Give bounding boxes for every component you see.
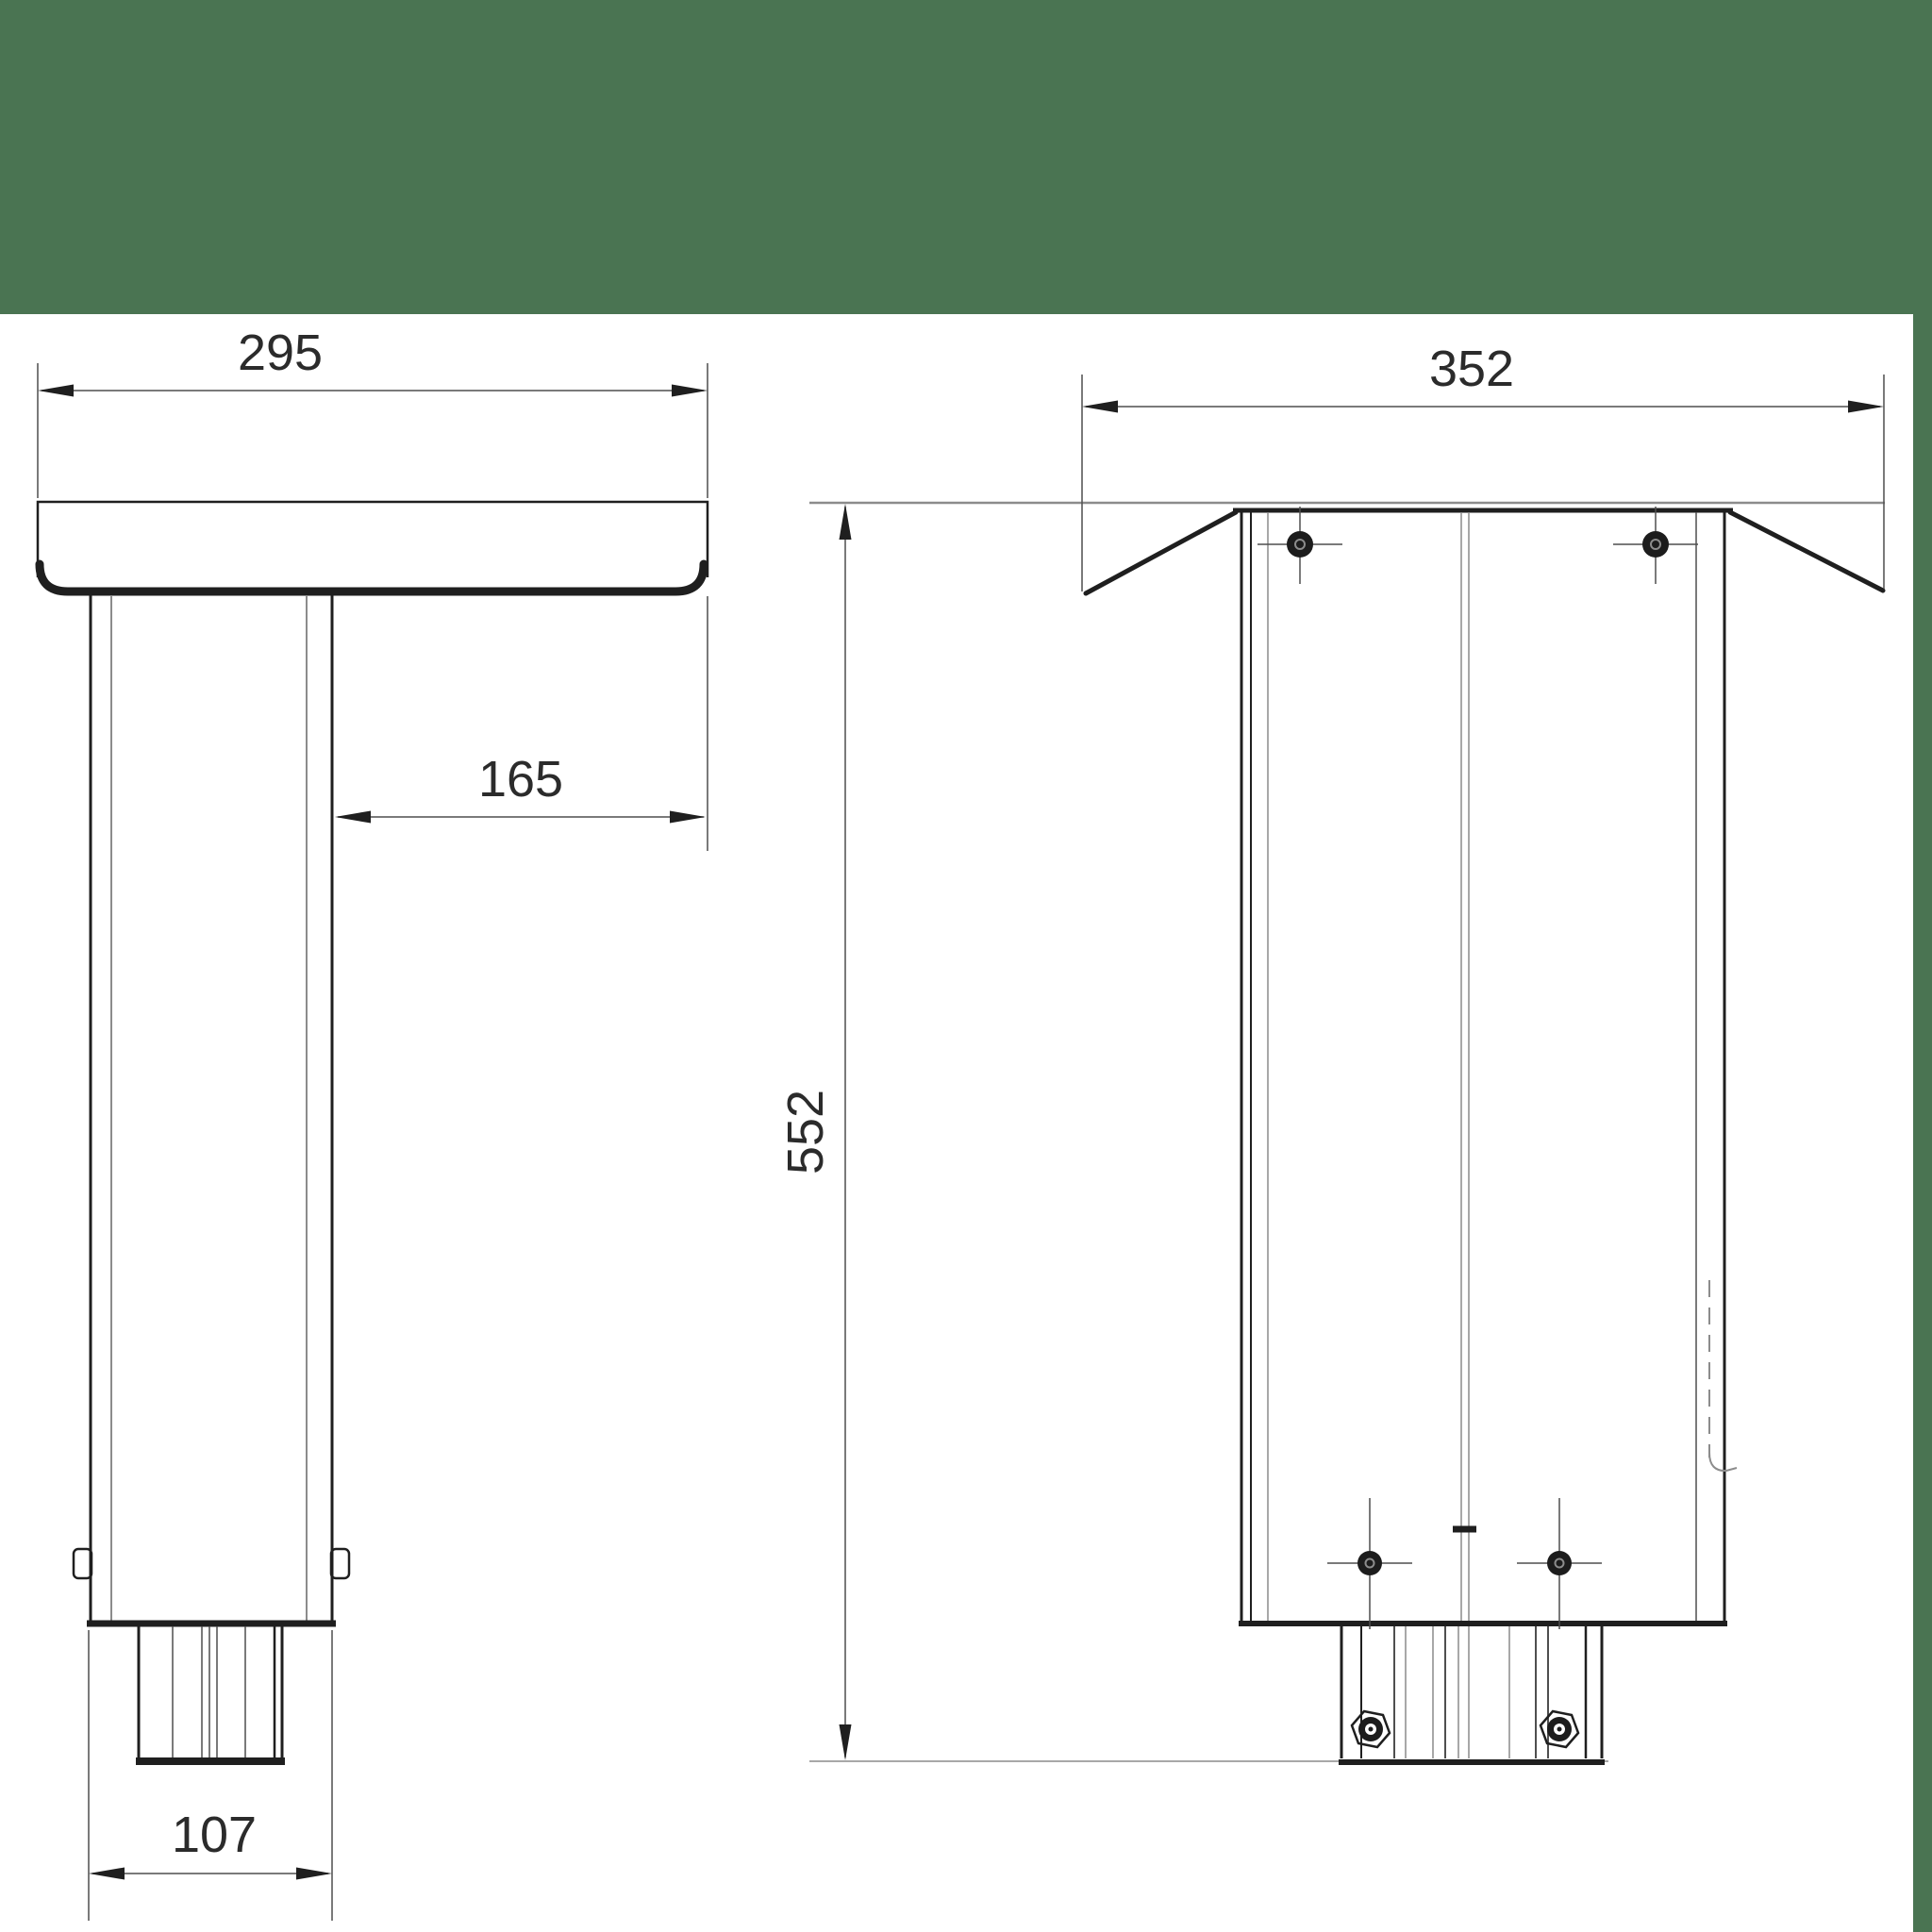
lower-mounting-screws xyxy=(1327,1498,1602,1629)
arrowhead-left-icon xyxy=(335,811,371,824)
left-side-tab xyxy=(74,1549,92,1578)
dimension-total-height-552: 552 xyxy=(777,504,852,1760)
side-view-column xyxy=(74,595,349,1624)
plate-outline xyxy=(38,502,708,577)
screw-icon xyxy=(1357,1551,1382,1575)
foot-screw-icon xyxy=(1352,1711,1390,1747)
top-mounting-screws xyxy=(1257,507,1698,584)
screw-icon xyxy=(1547,1551,1572,1575)
foot-screw-icon xyxy=(1541,1711,1578,1747)
right-wing xyxy=(1730,512,1883,591)
dimension-label-107: 107 xyxy=(172,1807,257,1863)
technical-drawing-canvas: 295 165 107 xyxy=(0,0,1932,1932)
arrowhead-up-icon xyxy=(840,504,852,540)
front-view: 352 552 xyxy=(777,341,1885,1762)
side-view-top-plate xyxy=(38,502,708,591)
arrowhead-left-icon xyxy=(38,385,74,397)
side-view-foot xyxy=(136,1626,285,1761)
arrowhead-left-icon xyxy=(1082,401,1118,413)
plate-bottom-bold-edge xyxy=(40,564,704,591)
arrowhead-right-icon xyxy=(1848,401,1884,413)
dimension-plate-width-295: 295 xyxy=(38,325,708,498)
arrowhead-down-icon xyxy=(840,1724,852,1760)
right-side-tab xyxy=(331,1549,349,1578)
front-view-foot xyxy=(1339,1626,1605,1762)
screw-icon xyxy=(1642,531,1669,558)
dimension-label-165: 165 xyxy=(478,751,563,808)
arrowhead-right-icon xyxy=(670,811,706,824)
dimension-label-295: 295 xyxy=(238,325,323,381)
dimension-foot-width-107: 107 xyxy=(89,1630,332,1921)
front-view-body xyxy=(1239,512,1737,1624)
side-view: 295 165 107 xyxy=(38,325,708,1921)
arrowhead-right-icon xyxy=(672,385,708,397)
dimension-column-offset-165: 165 xyxy=(335,596,708,851)
dimension-plate-width-352: 352 xyxy=(1082,341,1884,591)
arrowhead-right-icon xyxy=(296,1868,332,1880)
dimension-label-552: 552 xyxy=(777,1090,834,1174)
arrowhead-left-icon xyxy=(89,1868,125,1880)
screw-icon xyxy=(1287,531,1313,558)
left-wing xyxy=(1086,512,1236,593)
dimension-label-352: 352 xyxy=(1429,341,1514,397)
